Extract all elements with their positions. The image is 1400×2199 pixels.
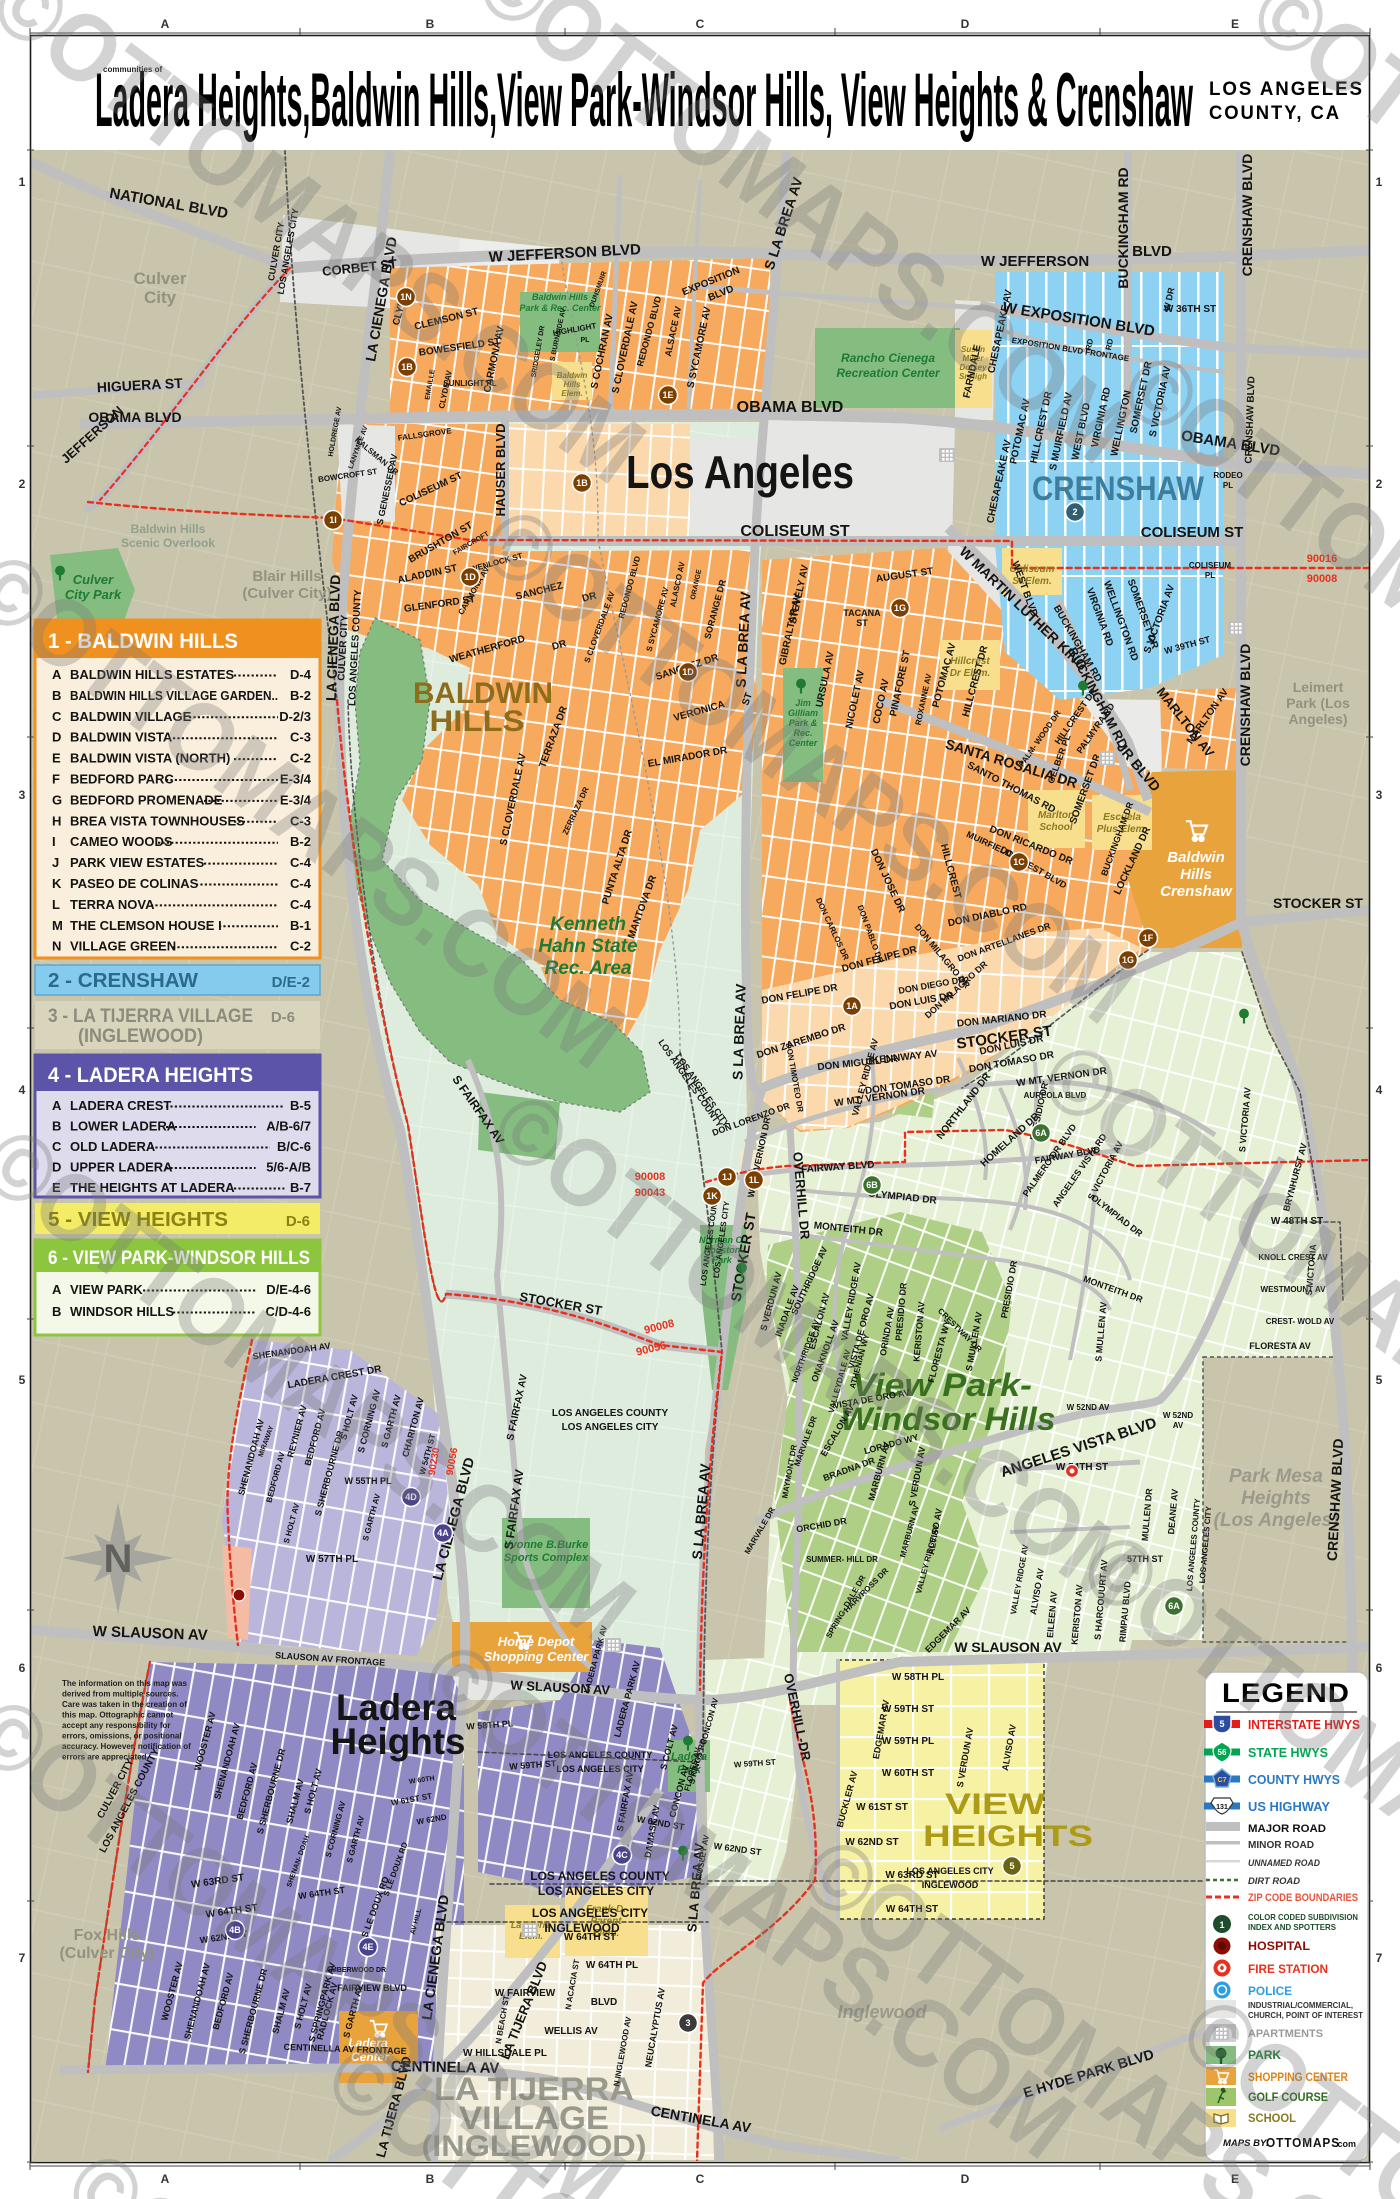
svg-text:W 58TH PL: W 58TH PL bbox=[892, 1672, 944, 1683]
svg-text:B-2: B-2 bbox=[290, 688, 311, 703]
svg-text:INDEX AND SPOTTERS: INDEX AND SPOTTERS bbox=[1248, 1922, 1336, 1932]
svg-text:1F: 1F bbox=[1143, 933, 1154, 943]
svg-text:Care was taken in the creation: Care was taken in the creation of bbox=[62, 1700, 187, 1709]
svg-text:School: School bbox=[1039, 822, 1073, 833]
svg-text:4 - LADERA HEIGHTS: 4 - LADERA HEIGHTS bbox=[48, 1064, 253, 1087]
svg-text:CRENSHAW BLVD: CRENSHAW BLVD bbox=[1239, 154, 1255, 277]
svg-text:Culver: Culver bbox=[134, 269, 187, 288]
svg-text:2 - CRENSHAW: 2 - CRENSHAW bbox=[48, 970, 198, 992]
svg-text:B-5: B-5 bbox=[290, 1098, 311, 1113]
svg-text:HILLS: HILLS bbox=[430, 705, 525, 738]
svg-text:PL: PL bbox=[1205, 571, 1215, 580]
svg-text:C-4: C-4 bbox=[290, 897, 312, 912]
svg-text:C: C bbox=[696, 17, 705, 31]
svg-text:C: C bbox=[52, 709, 62, 724]
svg-text:Blair Hills: Blair Hills bbox=[252, 568, 321, 585]
svg-text:DIRT ROAD: DIRT ROAD bbox=[1248, 1876, 1300, 1887]
svg-text:BLVD: BLVD bbox=[1132, 243, 1172, 260]
svg-text:A: A bbox=[52, 1098, 62, 1113]
svg-text:B-1: B-1 bbox=[290, 918, 311, 933]
svg-text:4: 4 bbox=[19, 1083, 26, 1097]
svg-text:CRENSHAW: CRENSHAW bbox=[1032, 470, 1205, 508]
svg-text:D: D bbox=[961, 2172, 970, 2186]
svg-text:C-2: C-2 bbox=[290, 939, 311, 954]
svg-text:C7: C7 bbox=[1218, 1777, 1227, 1784]
svg-text:2: 2 bbox=[19, 477, 26, 491]
svg-text:LOS ANGELES CITY: LOS ANGELES CITY bbox=[538, 1884, 654, 1898]
svg-text:COLISEUM ST: COLISEUM ST bbox=[740, 523, 850, 540]
svg-text:1: 1 bbox=[1376, 175, 1383, 189]
svg-text:BLVD: BLVD bbox=[591, 1997, 617, 2008]
svg-text:131: 131 bbox=[1216, 1804, 1228, 1811]
svg-text:1G: 1G bbox=[894, 603, 906, 613]
svg-text:ST: ST bbox=[856, 618, 868, 628]
svg-text:Fox Hills: Fox Hills bbox=[74, 1927, 141, 1944]
svg-text:COLISEUM: COLISEUM bbox=[1189, 561, 1232, 570]
svg-text:HOSPITAL: HOSPITAL bbox=[1248, 1939, 1310, 1953]
svg-text:5/6-A/B: 5/6-A/B bbox=[266, 1160, 311, 1175]
svg-text:OBAMA BLVD: OBAMA BLVD bbox=[737, 399, 844, 416]
svg-text:5: 5 bbox=[19, 1373, 26, 1387]
svg-text:B: B bbox=[426, 17, 435, 31]
svg-text:Park (Los: Park (Los bbox=[1286, 695, 1350, 711]
svg-text:STOCKER ST: STOCKER ST bbox=[1273, 895, 1363, 911]
svg-text:VILLAGE GREEN: VILLAGE GREEN bbox=[70, 939, 176, 954]
svg-text:HEIGHTS: HEIGHTS bbox=[923, 1820, 1093, 1853]
svg-text:E: E bbox=[1231, 17, 1239, 31]
svg-text:W 64TH PL: W 64TH PL bbox=[586, 1960, 638, 1971]
svg-text:Kenneth: Kenneth bbox=[550, 914, 626, 935]
svg-text:7: 7 bbox=[19, 1951, 26, 1965]
svg-text:D/E-2: D/E-2 bbox=[272, 974, 310, 991]
svg-text:OBAMA BLVD: OBAMA BLVD bbox=[88, 409, 181, 425]
svg-text:B-7: B-7 bbox=[290, 1180, 311, 1195]
svg-text:3 - LA TIJERRA VILLAGE: 3 - LA TIJERRA VILLAGE bbox=[48, 1006, 253, 1027]
svg-text:7: 7 bbox=[1376, 1951, 1383, 1965]
svg-text:2: 2 bbox=[1072, 507, 1077, 517]
svg-text:W 60TH ST: W 60TH ST bbox=[882, 1768, 934, 1779]
svg-text:(INGLEWOOD): (INGLEWOOD) bbox=[78, 1026, 203, 1047]
svg-text:CAMEO WOODS: CAMEO WOODS bbox=[70, 834, 173, 849]
svg-text:UNNAMED ROAD: UNNAMED ROAD bbox=[1248, 1858, 1320, 1869]
svg-text:Baldwin Hills: Baldwin Hills bbox=[532, 292, 588, 302]
svg-text:ZIP CODE BOUNDARIES: ZIP CODE BOUNDARIES bbox=[1248, 1892, 1358, 1904]
svg-text:W JEFFERSON: W JEFFERSON bbox=[981, 253, 1089, 270]
svg-text:MINOR ROAD: MINOR ROAD bbox=[1248, 1840, 1314, 1851]
svg-text:5: 5 bbox=[1219, 1719, 1224, 1729]
svg-text:LOS ANGELES COUNTY: LOS ANGELES COUNTY bbox=[552, 1408, 669, 1419]
svg-text:3: 3 bbox=[1376, 788, 1383, 802]
svg-text:D-6: D-6 bbox=[271, 1009, 295, 1026]
svg-text:W 64TH ST: W 64TH ST bbox=[564, 1932, 616, 1943]
svg-text:WELLIS AV: WELLIS AV bbox=[544, 2026, 598, 2037]
svg-text:LOS ANGELES CITY: LOS ANGELES CITY bbox=[562, 1422, 659, 1433]
svg-text:THE CLEMSON HOUSE I: THE CLEMSON HOUSE I bbox=[70, 918, 222, 933]
svg-text:J: J bbox=[52, 855, 59, 870]
svg-text:AV: AV bbox=[1173, 1421, 1184, 1430]
svg-text:(Culver City): (Culver City) bbox=[59, 1945, 154, 1962]
svg-text:6: 6 bbox=[1376, 1661, 1383, 1675]
svg-text:TACANA: TACANA bbox=[843, 608, 881, 618]
svg-text:A/B-6/7: A/B-6/7 bbox=[266, 1119, 311, 1134]
svg-text:N: N bbox=[104, 1537, 133, 1581]
svg-text:C: C bbox=[696, 2172, 705, 2186]
svg-text:US HIGHWAY: US HIGHWAY bbox=[1248, 1800, 1331, 1814]
svg-text:Crenshaw: Crenshaw bbox=[1160, 883, 1233, 900]
svg-text:E: E bbox=[52, 751, 61, 766]
svg-text:1A: 1A bbox=[846, 1001, 858, 1011]
svg-text:G: G bbox=[52, 792, 62, 807]
svg-text:4: 4 bbox=[1376, 1083, 1383, 1097]
svg-text:TERRA NOVA: TERRA NOVA bbox=[70, 897, 155, 912]
svg-text:Recreation Center: Recreation Center bbox=[836, 366, 941, 380]
svg-text:1: 1 bbox=[1219, 1920, 1224, 1930]
svg-text:M: M bbox=[52, 918, 63, 933]
svg-text:POLICE: POLICE bbox=[1248, 1984, 1292, 1998]
svg-text:Los Angeles: Los Angeles bbox=[626, 446, 854, 498]
svg-text:LOS ANGELES CITY: LOS ANGELES CITY bbox=[532, 1906, 648, 1920]
svg-text:Scenic Overlook: Scenic Overlook bbox=[121, 536, 215, 550]
svg-text:N: N bbox=[52, 939, 61, 954]
svg-text:W 52ND AV: W 52ND AV bbox=[1067, 1403, 1110, 1412]
svg-text:MAJOR ROAD: MAJOR ROAD bbox=[1248, 1823, 1326, 1835]
svg-text:6B: 6B bbox=[866, 1180, 878, 1190]
svg-text:Heights: Heights bbox=[1241, 1488, 1311, 1509]
svg-text:K: K bbox=[52, 876, 62, 891]
svg-text:1I: 1I bbox=[329, 515, 337, 525]
svg-text:D-4: D-4 bbox=[290, 667, 312, 682]
svg-text:PASEO DE COLINAS: PASEO DE COLINAS bbox=[70, 876, 199, 891]
svg-text:B/C-6: B/C-6 bbox=[277, 1139, 311, 1154]
svg-text:Leimert: Leimert bbox=[1293, 679, 1344, 695]
svg-text:W 61ST ST: W 61ST ST bbox=[856, 1802, 908, 1813]
svg-text:D: D bbox=[52, 730, 61, 745]
svg-text:H: H bbox=[52, 813, 61, 828]
svg-text:FLORESTA AV: FLORESTA AV bbox=[1249, 1341, 1311, 1351]
svg-text:3: 3 bbox=[19, 788, 26, 802]
svg-text:56: 56 bbox=[1218, 1748, 1227, 1757]
svg-text:1E: 1E bbox=[662, 390, 673, 400]
svg-text:L: L bbox=[52, 897, 60, 912]
svg-text:SUMMER- HILL DR: SUMMER- HILL DR bbox=[806, 1555, 878, 1564]
svg-text:(Culver City): (Culver City) bbox=[242, 585, 331, 602]
svg-text:Baldwin Hills: Baldwin Hills bbox=[131, 522, 206, 536]
svg-text:The information on this map wa: The information on this map was bbox=[62, 1679, 187, 1688]
svg-text:FIRE STATION: FIRE STATION bbox=[1248, 1962, 1328, 1976]
svg-text:5: 5 bbox=[1009, 1861, 1014, 1871]
svg-text:6: 6 bbox=[19, 1661, 26, 1675]
svg-text:1: 1 bbox=[19, 175, 26, 189]
svg-text:1L: 1L bbox=[749, 1175, 760, 1185]
svg-text:this map. Ottographic canno: this map. Ottographic cannot bbox=[62, 1711, 173, 1720]
svg-text:F: F bbox=[52, 772, 60, 787]
svg-text:LADERA CREST: LADERA CREST bbox=[70, 1098, 171, 1113]
svg-text:CRENSHAW BLVD: CRENSHAW BLVD bbox=[1237, 644, 1253, 767]
svg-text:W SLAUSON AV: W SLAUSON AV bbox=[954, 1639, 1062, 1655]
svg-text:BEDFORD PARC: BEDFORD PARC bbox=[70, 772, 174, 787]
svg-text:LOWER LADERA: LOWER LADERA bbox=[70, 1119, 177, 1134]
svg-text:HAUSER BLVD: HAUSER BLVD bbox=[493, 424, 508, 517]
svg-text:City: City bbox=[144, 288, 177, 307]
svg-text:VIEW: VIEW bbox=[945, 1788, 1046, 1821]
svg-text:derived from multiple sources.: derived from multiple sources. bbox=[62, 1690, 178, 1699]
svg-text:Hills: Hills bbox=[1180, 866, 1212, 883]
svg-text:1J: 1J bbox=[722, 1172, 732, 1182]
svg-text:Baldwin: Baldwin bbox=[1167, 849, 1225, 866]
svg-text:W 57TH PL: W 57TH PL bbox=[306, 1554, 358, 1565]
svg-text:Angeles): Angeles) bbox=[1288, 711, 1347, 727]
svg-text:S LA BREA AV: S LA BREA AV bbox=[729, 983, 748, 1080]
svg-text:A: A bbox=[161, 17, 170, 31]
svg-text:D-2/3: D-2/3 bbox=[279, 709, 311, 724]
svg-text:A: A bbox=[52, 1282, 62, 1297]
svg-text:D-6: D-6 bbox=[286, 1213, 310, 1230]
svg-text:W 59TH PL: W 59TH PL bbox=[882, 1736, 934, 1747]
svg-text:6A: 6A bbox=[1035, 1128, 1047, 1138]
svg-text:B: B bbox=[52, 1304, 61, 1319]
svg-text:BUCKINGHAM RD: BUCKINGHAM RD bbox=[1115, 167, 1131, 288]
svg-text:(Los Angeles): (Los Angeles) bbox=[1214, 1510, 1339, 1531]
svg-text:D: D bbox=[961, 17, 970, 31]
svg-text:Park Mesa: Park Mesa bbox=[1229, 1466, 1323, 1487]
svg-text:3: 3 bbox=[685, 2018, 690, 2028]
svg-text:COLISEUM ST: COLISEUM ST bbox=[1141, 524, 1244, 541]
svg-text:1B: 1B bbox=[401, 362, 413, 372]
svg-text:W 52ND: W 52ND bbox=[1163, 1411, 1193, 1420]
svg-text:PL: PL bbox=[581, 337, 591, 344]
svg-text:I: I bbox=[52, 834, 56, 849]
svg-text:PARK VIEW ESTATES: PARK VIEW ESTATES bbox=[70, 855, 205, 870]
svg-text:COLOR CODED SUBDIVISION: COLOR CODED SUBDIVISION bbox=[1248, 1912, 1358, 1922]
